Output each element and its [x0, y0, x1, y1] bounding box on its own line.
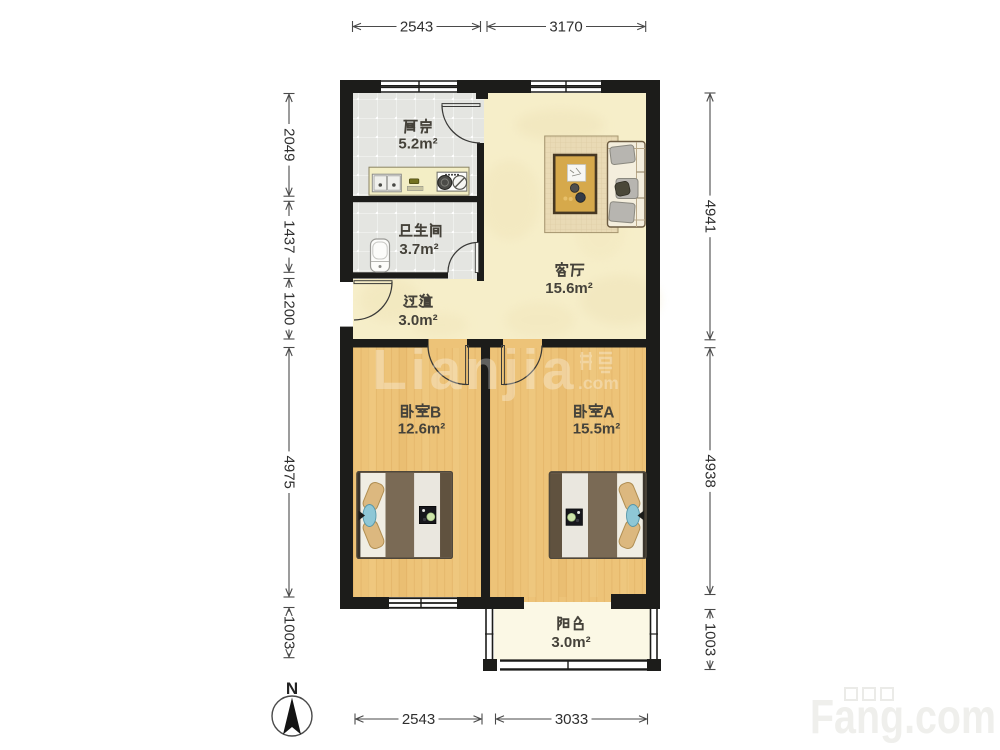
svg-text:15.6m²: 15.6m² — [545, 280, 593, 297]
svg-text:4975: 4975 — [281, 456, 298, 489]
svg-text:4941: 4941 — [702, 200, 719, 233]
svg-text:15.5m²: 15.5m² — [573, 420, 621, 437]
svg-text:12.6m²: 12.6m² — [398, 420, 446, 437]
svg-text:1003: 1003 — [702, 623, 719, 656]
svg-text:A: A — [603, 405, 614, 422]
svg-text:3.7m²: 3.7m² — [399, 241, 438, 258]
svg-text:2543: 2543 — [402, 711, 435, 728]
svg-text:3.0m²: 3.0m² — [398, 312, 437, 329]
svg-text:3170: 3170 — [549, 19, 582, 36]
svg-text:5.2m²: 5.2m² — [398, 135, 437, 152]
svg-text:3.0m²: 3.0m² — [551, 634, 590, 651]
svg-text:.com: .com — [578, 373, 619, 393]
svg-text:Lianjia: Lianjia — [372, 338, 577, 402]
svg-text:1437: 1437 — [281, 220, 298, 253]
svg-text:3033: 3033 — [555, 711, 588, 728]
svg-text:1200: 1200 — [281, 292, 298, 325]
svg-text:2049: 2049 — [281, 128, 298, 161]
svg-text:Fang.com: Fang.com — [810, 691, 996, 744]
svg-text:1003: 1003 — [281, 616, 298, 649]
svg-text:B: B — [430, 405, 441, 422]
svg-text:2543: 2543 — [400, 19, 433, 36]
svg-text:4938: 4938 — [702, 454, 719, 487]
svg-text:N: N — [286, 679, 298, 698]
